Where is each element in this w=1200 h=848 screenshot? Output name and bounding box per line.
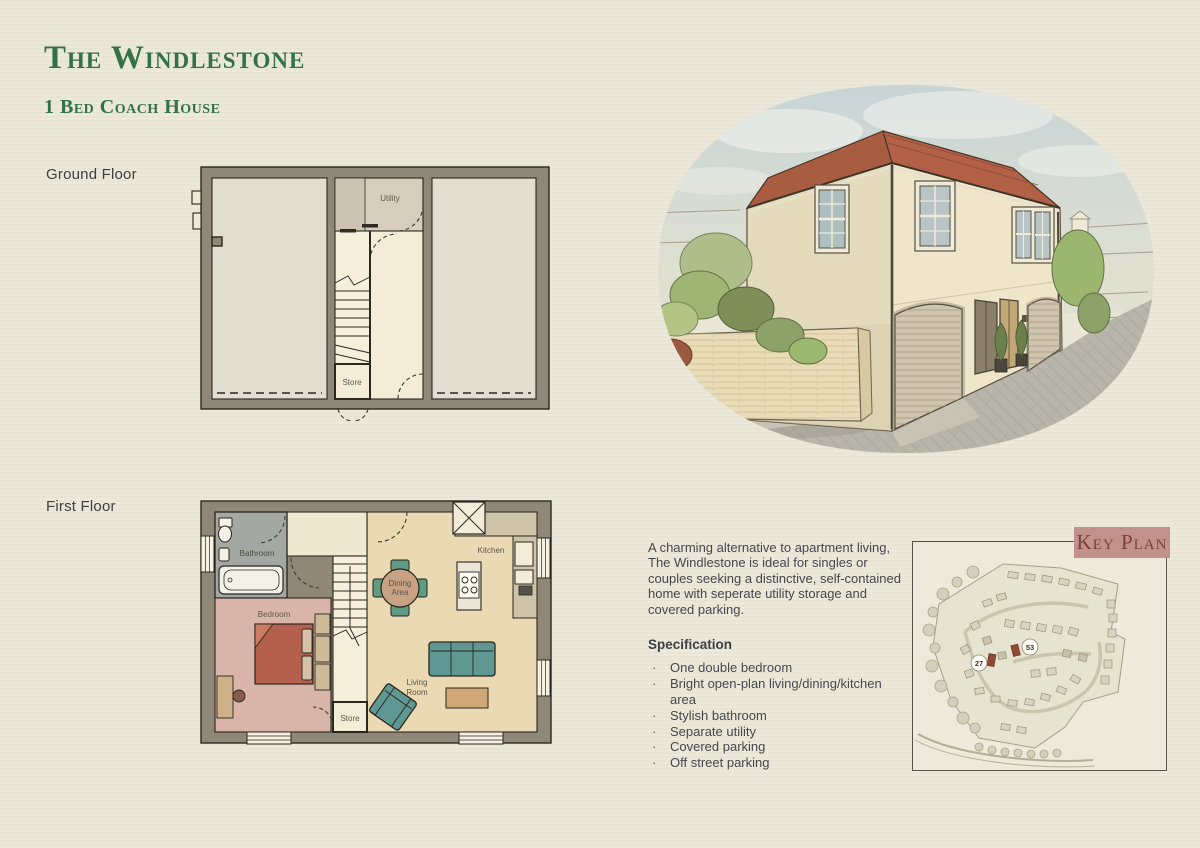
coffee-table xyxy=(446,688,488,708)
key-plan-container: 27 53 xyxy=(912,541,1167,771)
living-label-line1: Living xyxy=(407,678,428,687)
store-label: Store xyxy=(342,378,362,387)
key-plan-map: 27 53 xyxy=(913,542,1166,770)
stairwell xyxy=(335,231,370,364)
window-front-right-pair xyxy=(1012,207,1054,263)
meter-box xyxy=(193,213,201,229)
plot-27-label: 27 xyxy=(975,659,983,668)
page-title: The Windlestone xyxy=(44,40,305,77)
spec-item: Off street parking xyxy=(648,755,902,770)
brochure-page: The Windlestone 1 Bed Coach House Ground… xyxy=(0,0,1200,848)
sofa xyxy=(429,642,495,676)
dining-label-line2: Area xyxy=(392,588,409,597)
living-label-line2: Room xyxy=(406,688,428,697)
dining-label-line1: Dining xyxy=(389,579,412,588)
topiary-plant xyxy=(1016,320,1027,366)
garage-right xyxy=(432,178,536,399)
garage-left xyxy=(212,178,327,399)
key-plan-heading: Key Plan xyxy=(1074,527,1170,558)
topiary-plant xyxy=(995,323,1007,372)
property-copy: A charming alternative to apartment livi… xyxy=(648,540,902,771)
ground-floor-plan: Utility Store xyxy=(191,163,551,421)
house-illustration xyxy=(648,73,1163,463)
description-text: A charming alternative to apartment livi… xyxy=(648,540,902,617)
kitchen-label: Kitchen xyxy=(478,546,505,555)
window-left-face xyxy=(815,185,849,253)
landing xyxy=(287,512,367,556)
hallway xyxy=(370,231,423,399)
store-label: Store xyxy=(340,714,360,723)
bedroom-label: Bedroom xyxy=(258,610,291,619)
specification-list: One double bedroom Bright open-plan livi… xyxy=(648,660,902,770)
spec-item: One double bedroom xyxy=(648,660,902,675)
bush-red xyxy=(648,339,692,371)
first-floor-label: First Floor xyxy=(46,498,116,515)
page-subtitle: 1 Bed Coach House xyxy=(44,96,220,119)
ground-floor-label: Ground Floor xyxy=(46,166,137,183)
meter-box xyxy=(192,191,201,204)
spec-item: Stylish bathroom xyxy=(648,708,902,723)
desk xyxy=(217,676,233,718)
bush-small xyxy=(789,338,827,364)
spec-item: Covered parking xyxy=(648,739,902,754)
window-front-left xyxy=(915,181,955,251)
spec-item: Bright open-plan living/dining/kitchen a… xyxy=(648,676,902,707)
spec-item: Separate utility xyxy=(648,724,902,739)
specification-heading: Specification xyxy=(648,637,902,652)
bush-light xyxy=(654,302,698,336)
bathroom-label: Bathroom xyxy=(240,549,275,558)
utility-label: Utility xyxy=(380,194,400,203)
first-floor-plan: Bathroom Bedroom Kitchen Dining Area Liv… xyxy=(199,496,553,748)
plot-53-label: 53 xyxy=(1026,643,1034,652)
